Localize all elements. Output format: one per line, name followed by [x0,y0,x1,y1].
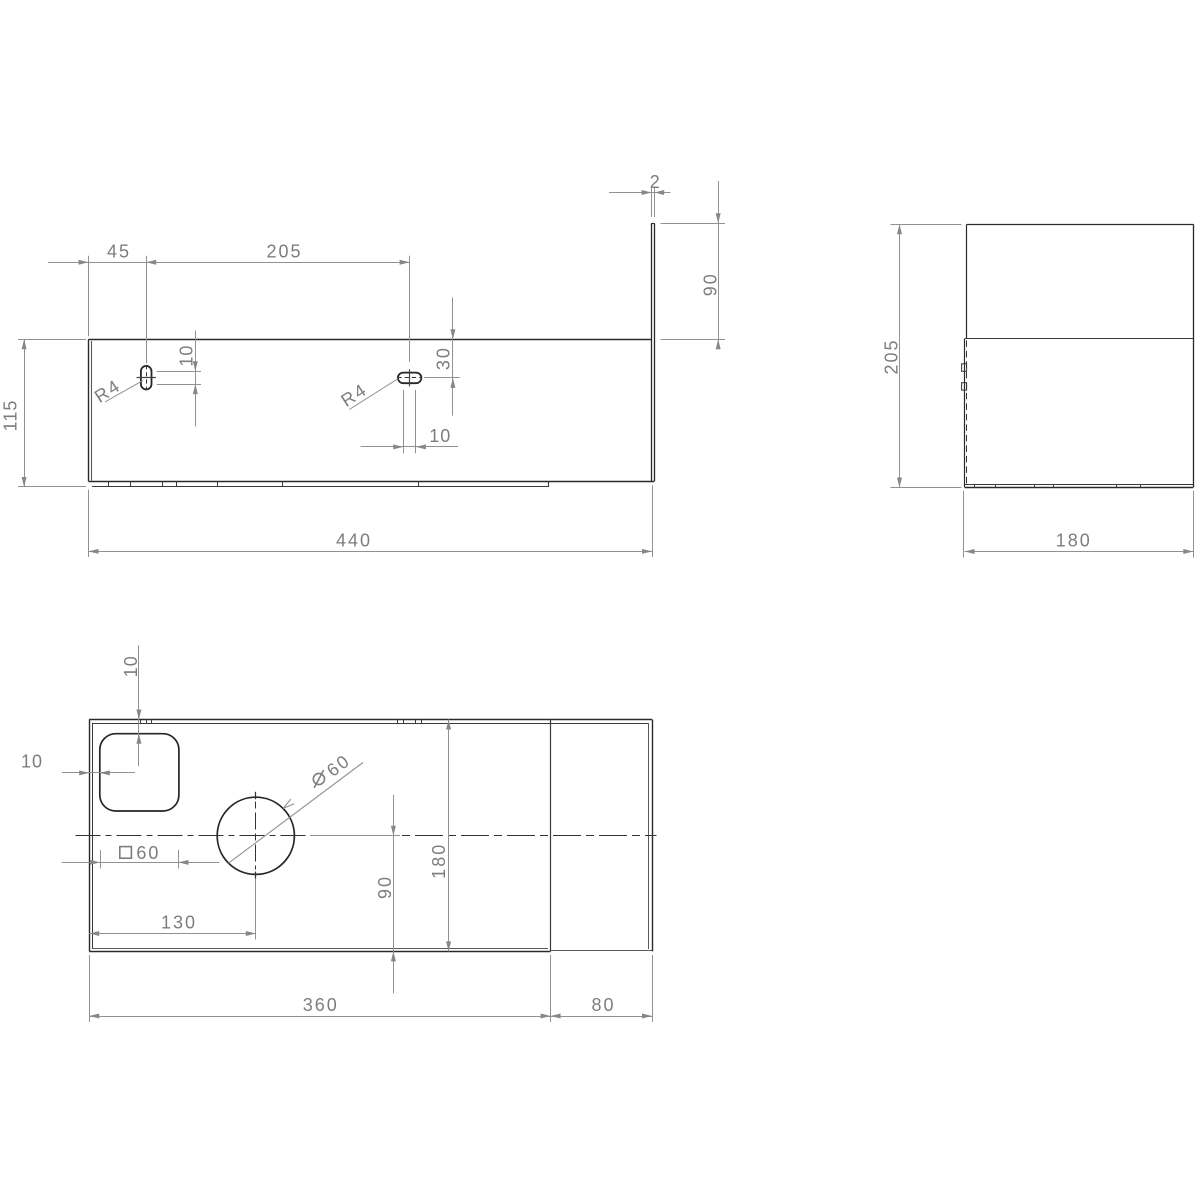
svg-text:115: 115 [0,400,20,432]
svg-text:440: 440 [336,531,372,551]
svg-text:90: 90 [375,875,395,899]
svg-text:180: 180 [1056,531,1092,551]
svg-text:10: 10 [121,655,141,677]
svg-text:30: 30 [433,346,453,370]
svg-text:10: 10 [21,752,43,772]
svg-text:130: 130 [161,913,197,933]
svg-text:360: 360 [303,995,339,1015]
svg-text:10: 10 [176,345,196,367]
svg-text:90: 90 [701,272,721,296]
svg-text:205: 205 [881,338,901,374]
svg-text:60: 60 [136,843,160,863]
svg-text:80: 80 [591,995,615,1015]
svg-text:45: 45 [107,242,131,262]
svg-text:180: 180 [429,843,449,879]
svg-text:2: 2 [650,172,660,192]
svg-text:10: 10 [429,426,451,446]
svg-text:205: 205 [266,242,302,262]
